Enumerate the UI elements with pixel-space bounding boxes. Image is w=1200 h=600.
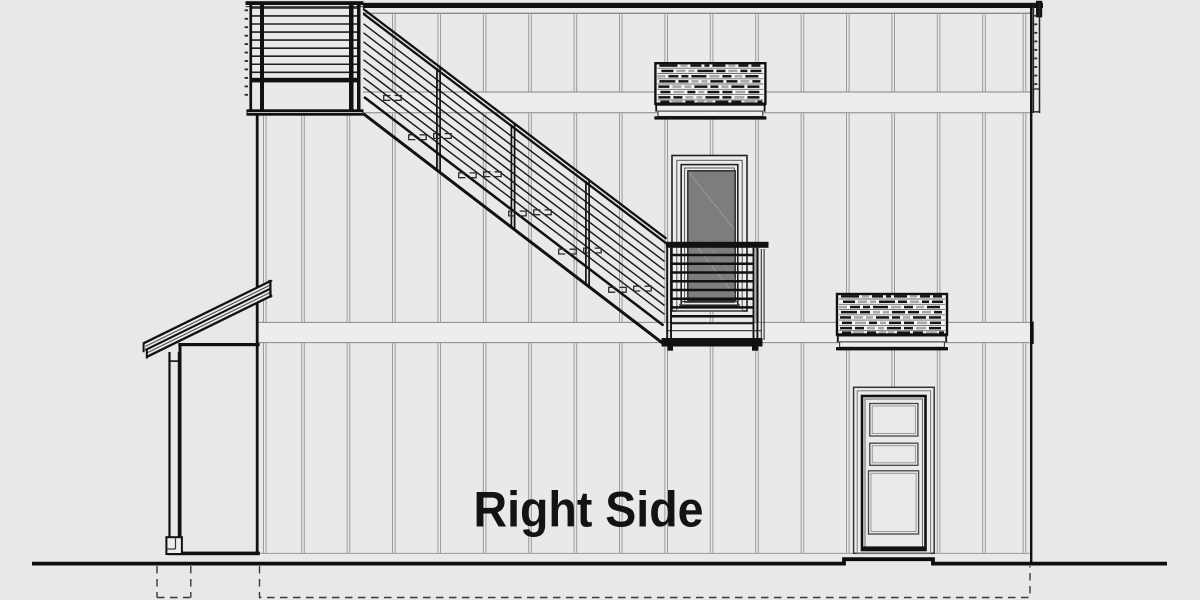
svg-text:Right Side: Right Side xyxy=(474,482,704,538)
